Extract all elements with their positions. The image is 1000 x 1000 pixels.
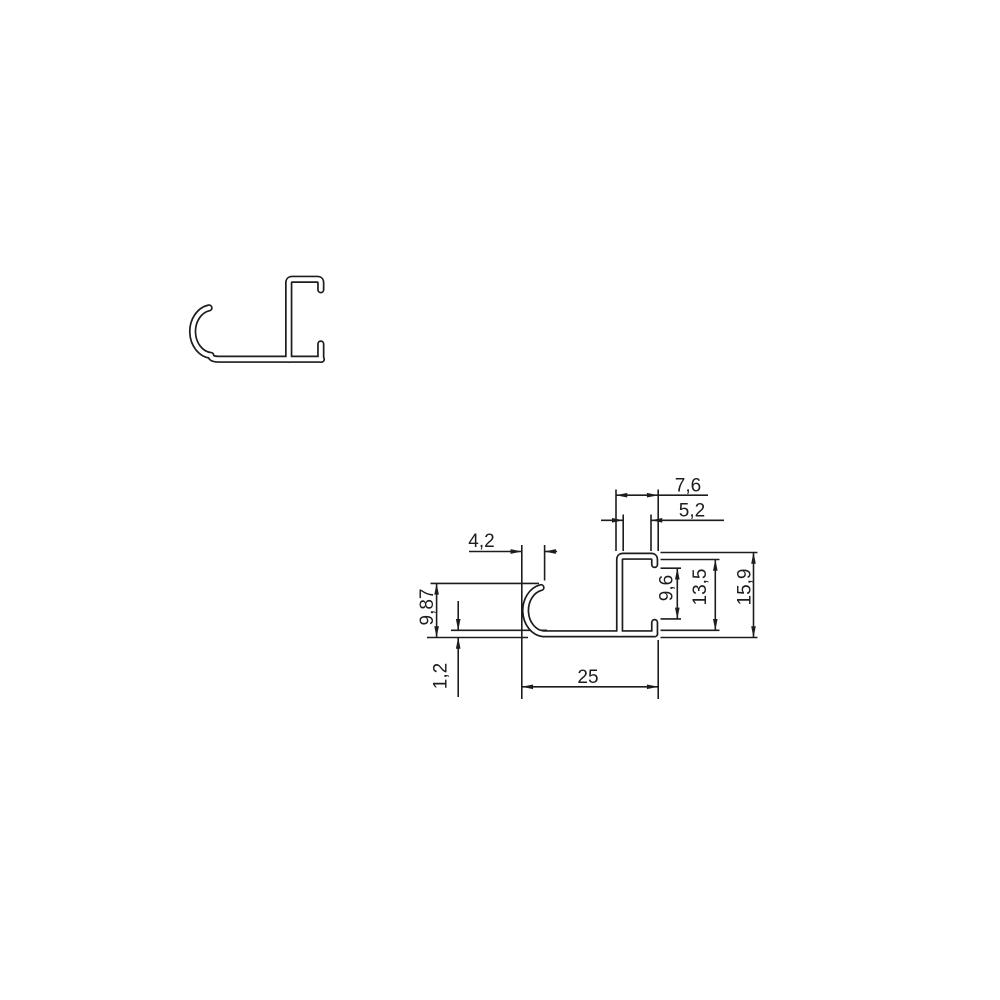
dim-label-hook-width: 4,2 (468, 531, 494, 552)
dim-label-tube-inner-height: 13,5 (690, 569, 711, 606)
profile-clean-view (193, 279, 322, 359)
profile-hook-and-base-inner (526, 588, 655, 634)
dimension-base-length: 25 (522, 545, 658, 699)
dim-label-tube-outer-height: 15,9 (735, 569, 756, 606)
profile-tube-wall-path (620, 556, 655, 634)
profile-tube-wall-inner (620, 556, 655, 634)
dim-label-base-thickness: 1,2 (431, 663, 452, 689)
technical-drawing-page: 7,6 5,2 4,2 9,87 1,2 25 9,6 (0, 0, 1000, 1000)
dim-label-tube-inner-width: 5,2 (679, 501, 705, 522)
dim-label-base-length: 25 (577, 667, 598, 688)
dim-label-tube-outer-width: 7,6 (675, 476, 701, 497)
profile-hook-and-base-inner (193, 308, 322, 359)
technical-drawing-canvas: 7,6 5,2 4,2 9,87 1,2 25 9,6 (0, 0, 1000, 1000)
dim-label-slot-opening: 9,6 (657, 575, 678, 601)
profile-tube-wall-path (289, 279, 321, 359)
dimension-tube-inner-width: 5,2 (601, 501, 724, 552)
profile-hook-and-base-path (526, 588, 655, 634)
dim-label-hook-height: 9,87 (417, 589, 438, 626)
dimension-hook-width: 4,2 (468, 531, 557, 581)
profile-tube-wall-inner (289, 279, 321, 359)
profile-hook-and-base-path (193, 308, 322, 359)
dimension-slot-opening: 9,6 (657, 568, 682, 619)
dimension-hook-height: 9,87 (417, 583, 539, 637)
